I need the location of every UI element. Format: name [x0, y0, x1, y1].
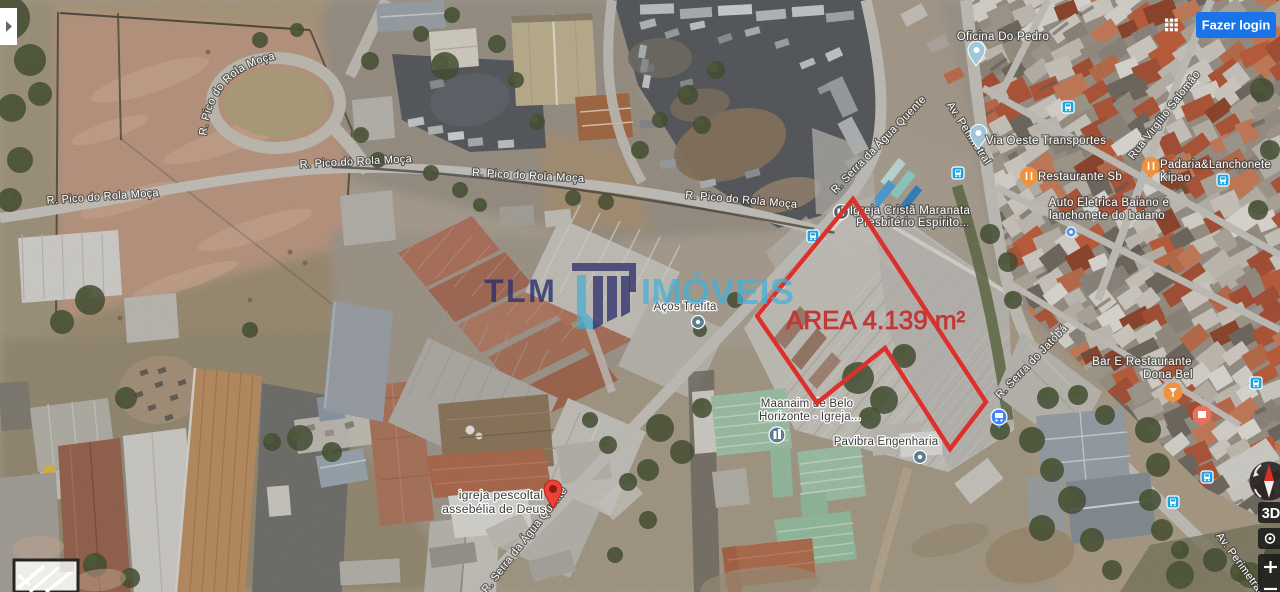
- svg-text:Restaurante Sb: Restaurante Sb: [1038, 171, 1122, 183]
- svg-text:3D: 3D: [1262, 506, 1280, 522]
- svg-text:Maanaim de Belo: Maanaim de Belo: [761, 398, 854, 410]
- svg-text:Padaria&Lanchonete: Padaria&Lanchonete: [1160, 159, 1271, 171]
- svg-text:Dona Bel: Dona Bel: [1143, 369, 1193, 381]
- svg-text:Igreja Cristã Maranata: Igreja Cristã Maranata: [850, 205, 971, 217]
- svg-text:Oficina Do Pedro: Oficina Do Pedro: [957, 31, 1049, 43]
- svg-text:Fazer login: Fazer login: [1202, 18, 1271, 33]
- svg-text:Auto Eletrica Baiano e: Auto Eletrica Baiano e: [1049, 197, 1169, 209]
- svg-text:assebélia de Deus: assebélia de Deus: [442, 502, 546, 516]
- svg-text:IMÓVEIS: IMÓVEIS: [641, 270, 795, 312]
- svg-text:lanchonete do baiano: lanchonete do baiano: [1049, 210, 1165, 222]
- svg-text:Horizonte - Igreja...: Horizonte - Igreja...: [759, 411, 861, 423]
- svg-text:Pavibra Engenharia: Pavibra Engenharia: [834, 436, 939, 448]
- svg-text:Kipao: Kipao: [1160, 172, 1190, 184]
- svg-text:TLM: TLM: [484, 273, 557, 309]
- svg-text:igreja pescoltal: igreja pescoltal: [459, 488, 544, 502]
- svg-text:Bar E Restaurante: Bar E Restaurante: [1092, 356, 1192, 368]
- svg-text:AREA 4.139 m²: AREA 4.139 m²: [786, 305, 966, 335]
- svg-text:Via Oeste Transportes: Via Oeste Transportes: [986, 135, 1107, 147]
